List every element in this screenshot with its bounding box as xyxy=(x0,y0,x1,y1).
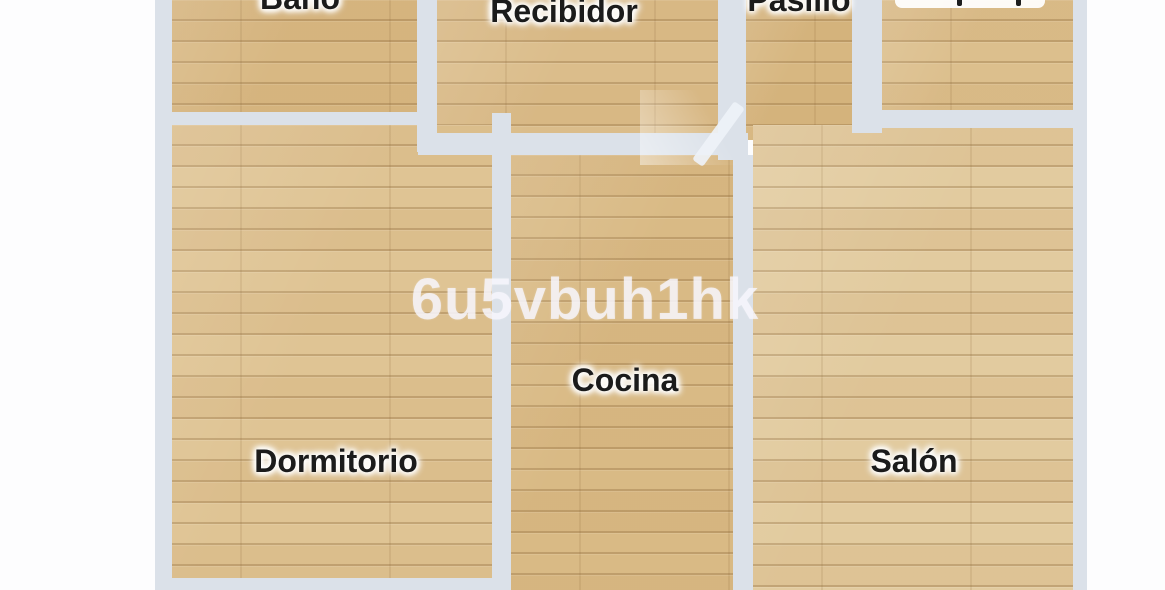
room-label-cocina: Cocina xyxy=(525,364,725,398)
label-fragment-glyph xyxy=(957,0,962,6)
watermark-text: 6u5vbuh1hk xyxy=(335,266,835,333)
room-label-recibidor: Recibidor xyxy=(439,0,689,29)
room-floor-top-right-room xyxy=(882,0,1073,112)
room-label-salon: Salón xyxy=(814,445,1014,479)
room-label-dormitorio: Dormitorio xyxy=(216,445,456,479)
room-floor-dormitorio xyxy=(172,125,492,578)
wall-cocina-salon-divider xyxy=(733,155,753,590)
wall-banyo-recibidor-divider xyxy=(417,0,437,152)
room-floor-salon xyxy=(753,125,1073,590)
room-floor-pasillo xyxy=(746,0,852,140)
room-label-pasillo: Pasillo xyxy=(699,0,899,18)
wall-outer-right xyxy=(1073,0,1087,590)
wall-outer-left xyxy=(155,0,172,590)
wall-dormitorio-cocina-divider xyxy=(492,113,511,590)
floorplan-canvas: Baño Recibidor Pasillo Dormitorio Cocina… xyxy=(0,0,1165,590)
room-label-banyo: Baño xyxy=(200,0,400,16)
wall-dormitorio-bottom-sliver xyxy=(155,578,511,590)
wall-topright-room-bottom xyxy=(852,110,1087,128)
room-floor-banyo xyxy=(172,0,418,112)
wall-banyo-bottom xyxy=(155,112,418,125)
label-fragment-glyph xyxy=(1016,0,1021,6)
room-label-fragment xyxy=(895,0,1045,8)
